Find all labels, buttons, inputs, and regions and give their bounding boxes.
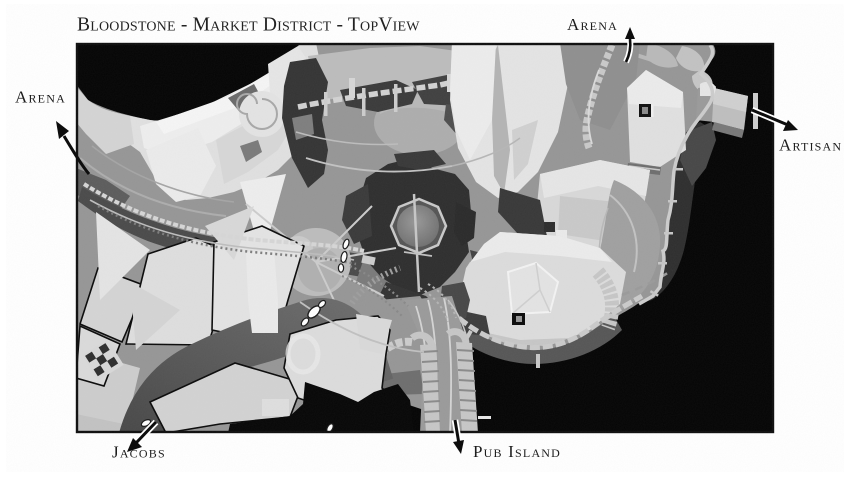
svg-text:Bloodstone - Market District -: Bloodstone - Market District - TopView: [77, 15, 420, 36]
svg-text:Arena: Arena: [567, 15, 618, 34]
svg-text:Artisan: Artisan: [779, 136, 842, 155]
svg-text:Arena: Arena: [15, 88, 66, 107]
svg-text:Pub Island: Pub Island: [473, 442, 561, 461]
